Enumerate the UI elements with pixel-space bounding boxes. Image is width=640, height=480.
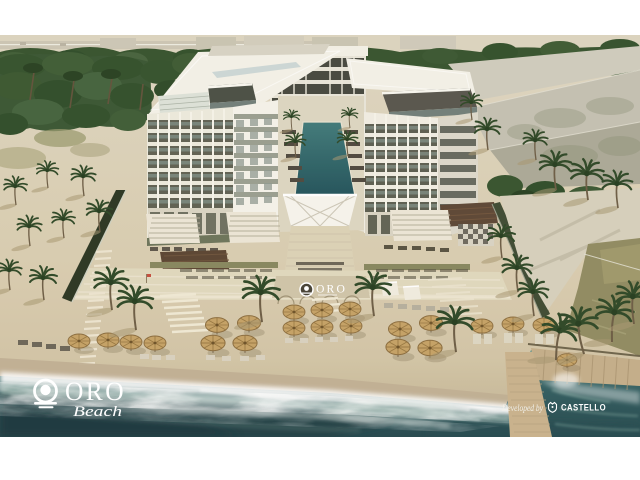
svg-text:ORO: ORO <box>65 377 126 406</box>
svg-text:ORO: ORO <box>316 282 347 296</box>
svg-text:Developed by: Developed by <box>501 404 543 414</box>
svg-text:CASTELLO: CASTELLO <box>561 403 606 413</box>
svg-text:Beach: Beach <box>73 404 122 420</box>
